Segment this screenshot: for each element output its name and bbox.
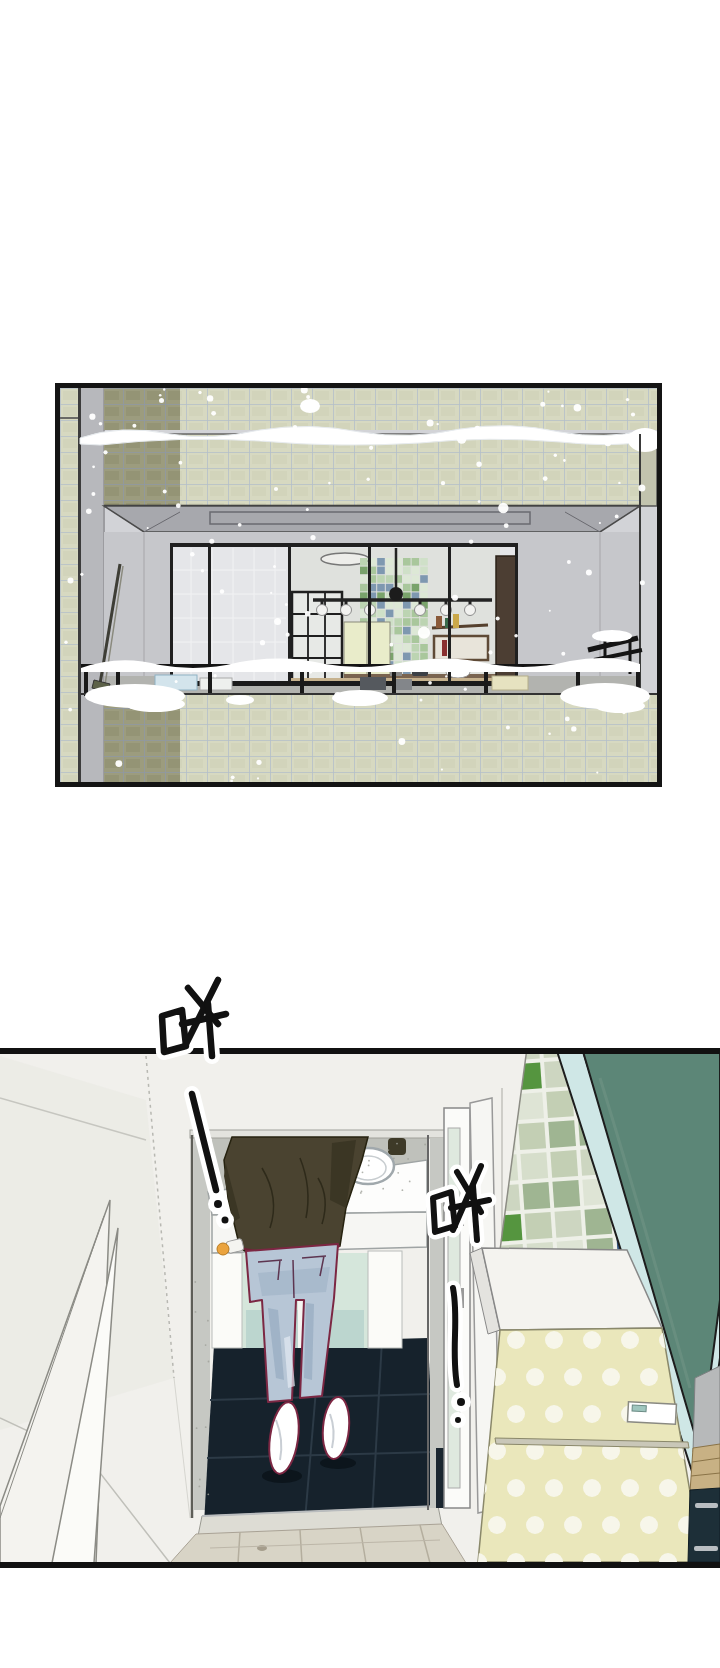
panel2-bottom-border (0, 1562, 720, 1568)
pendant-shade (389, 587, 403, 601)
fridge-label (627, 1402, 676, 1424)
entry-floor (170, 1506, 466, 1563)
interior-sink-panel (0, 1048, 720, 1568)
balcony-exterior-panel (55, 383, 662, 787)
comic-page (0, 0, 720, 1668)
sfx-splash-1 (130, 960, 250, 1235)
wood-shelf (690, 1444, 720, 1492)
kitchen-cabinet (344, 622, 390, 682)
balcony-soffit (104, 506, 640, 532)
sfx-splash-2 (415, 1160, 510, 1440)
panel2-top-border (0, 1048, 720, 1054)
drawer-handle (695, 1503, 718, 1508)
interior-scene (0, 1048, 720, 1568)
building-edge-column (60, 388, 105, 782)
dark-towel (388, 1138, 406, 1155)
balcony-scene (60, 388, 657, 782)
